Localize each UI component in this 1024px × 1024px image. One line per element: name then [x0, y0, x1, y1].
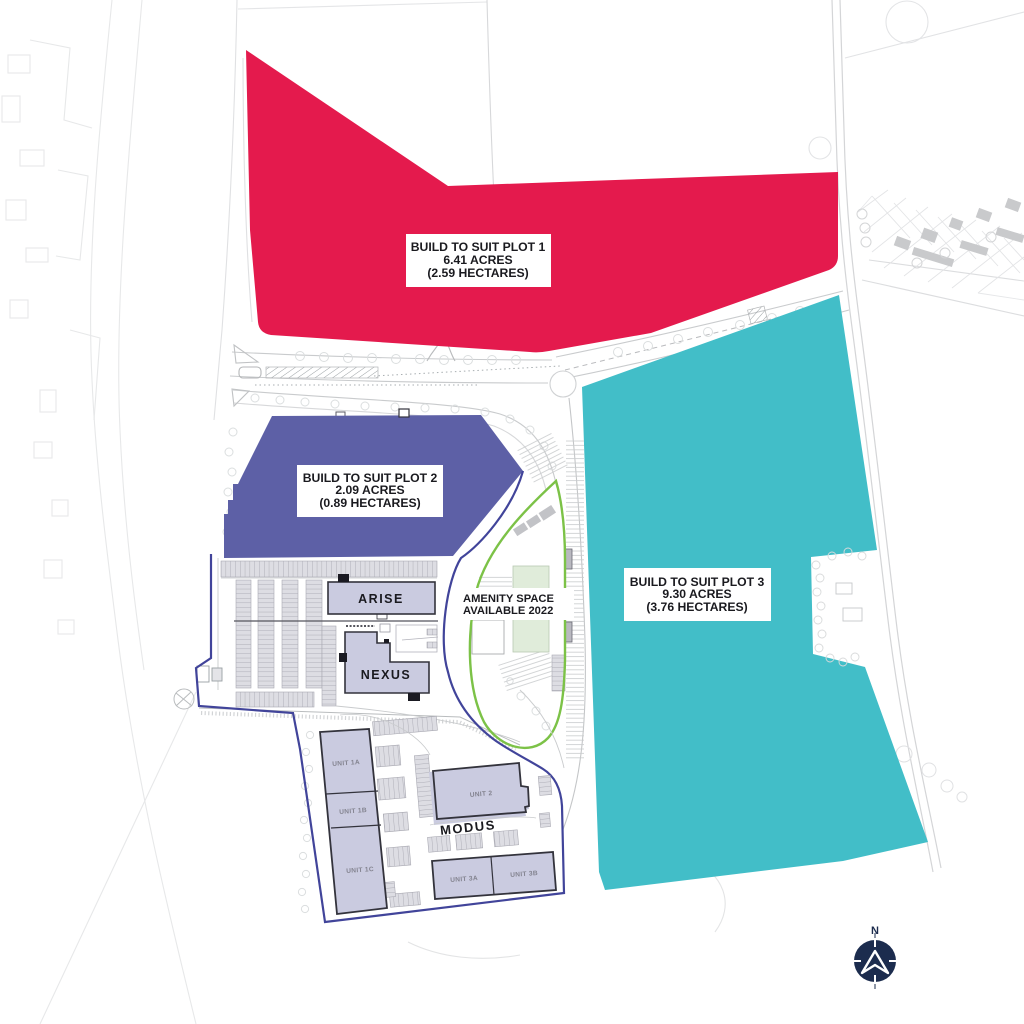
svg-text:(3.76 HECTARES): (3.76 HECTARES) — [646, 600, 747, 614]
svg-text:BUILD TO SUIT PLOT 1: BUILD TO SUIT PLOT 1 — [411, 240, 546, 254]
svg-text:NEXUS: NEXUS — [361, 668, 412, 682]
svg-text:2.09 ACRES: 2.09 ACRES — [335, 483, 404, 497]
svg-text:(0.89 HECTARES): (0.89 HECTARES) — [319, 496, 420, 510]
svg-text:ARISE: ARISE — [358, 592, 404, 606]
svg-text:AMENITY SPACE: AMENITY SPACE — [463, 593, 555, 605]
svg-text:N: N — [871, 925, 879, 937]
svg-text:AVAILABLE 2022: AVAILABLE 2022 — [463, 605, 553, 617]
svg-text:9.30 ACRES: 9.30 ACRES — [662, 587, 731, 601]
svg-text:6.41 ACRES: 6.41 ACRES — [443, 253, 512, 267]
svg-text:(2.59 HECTARES): (2.59 HECTARES) — [427, 266, 528, 280]
